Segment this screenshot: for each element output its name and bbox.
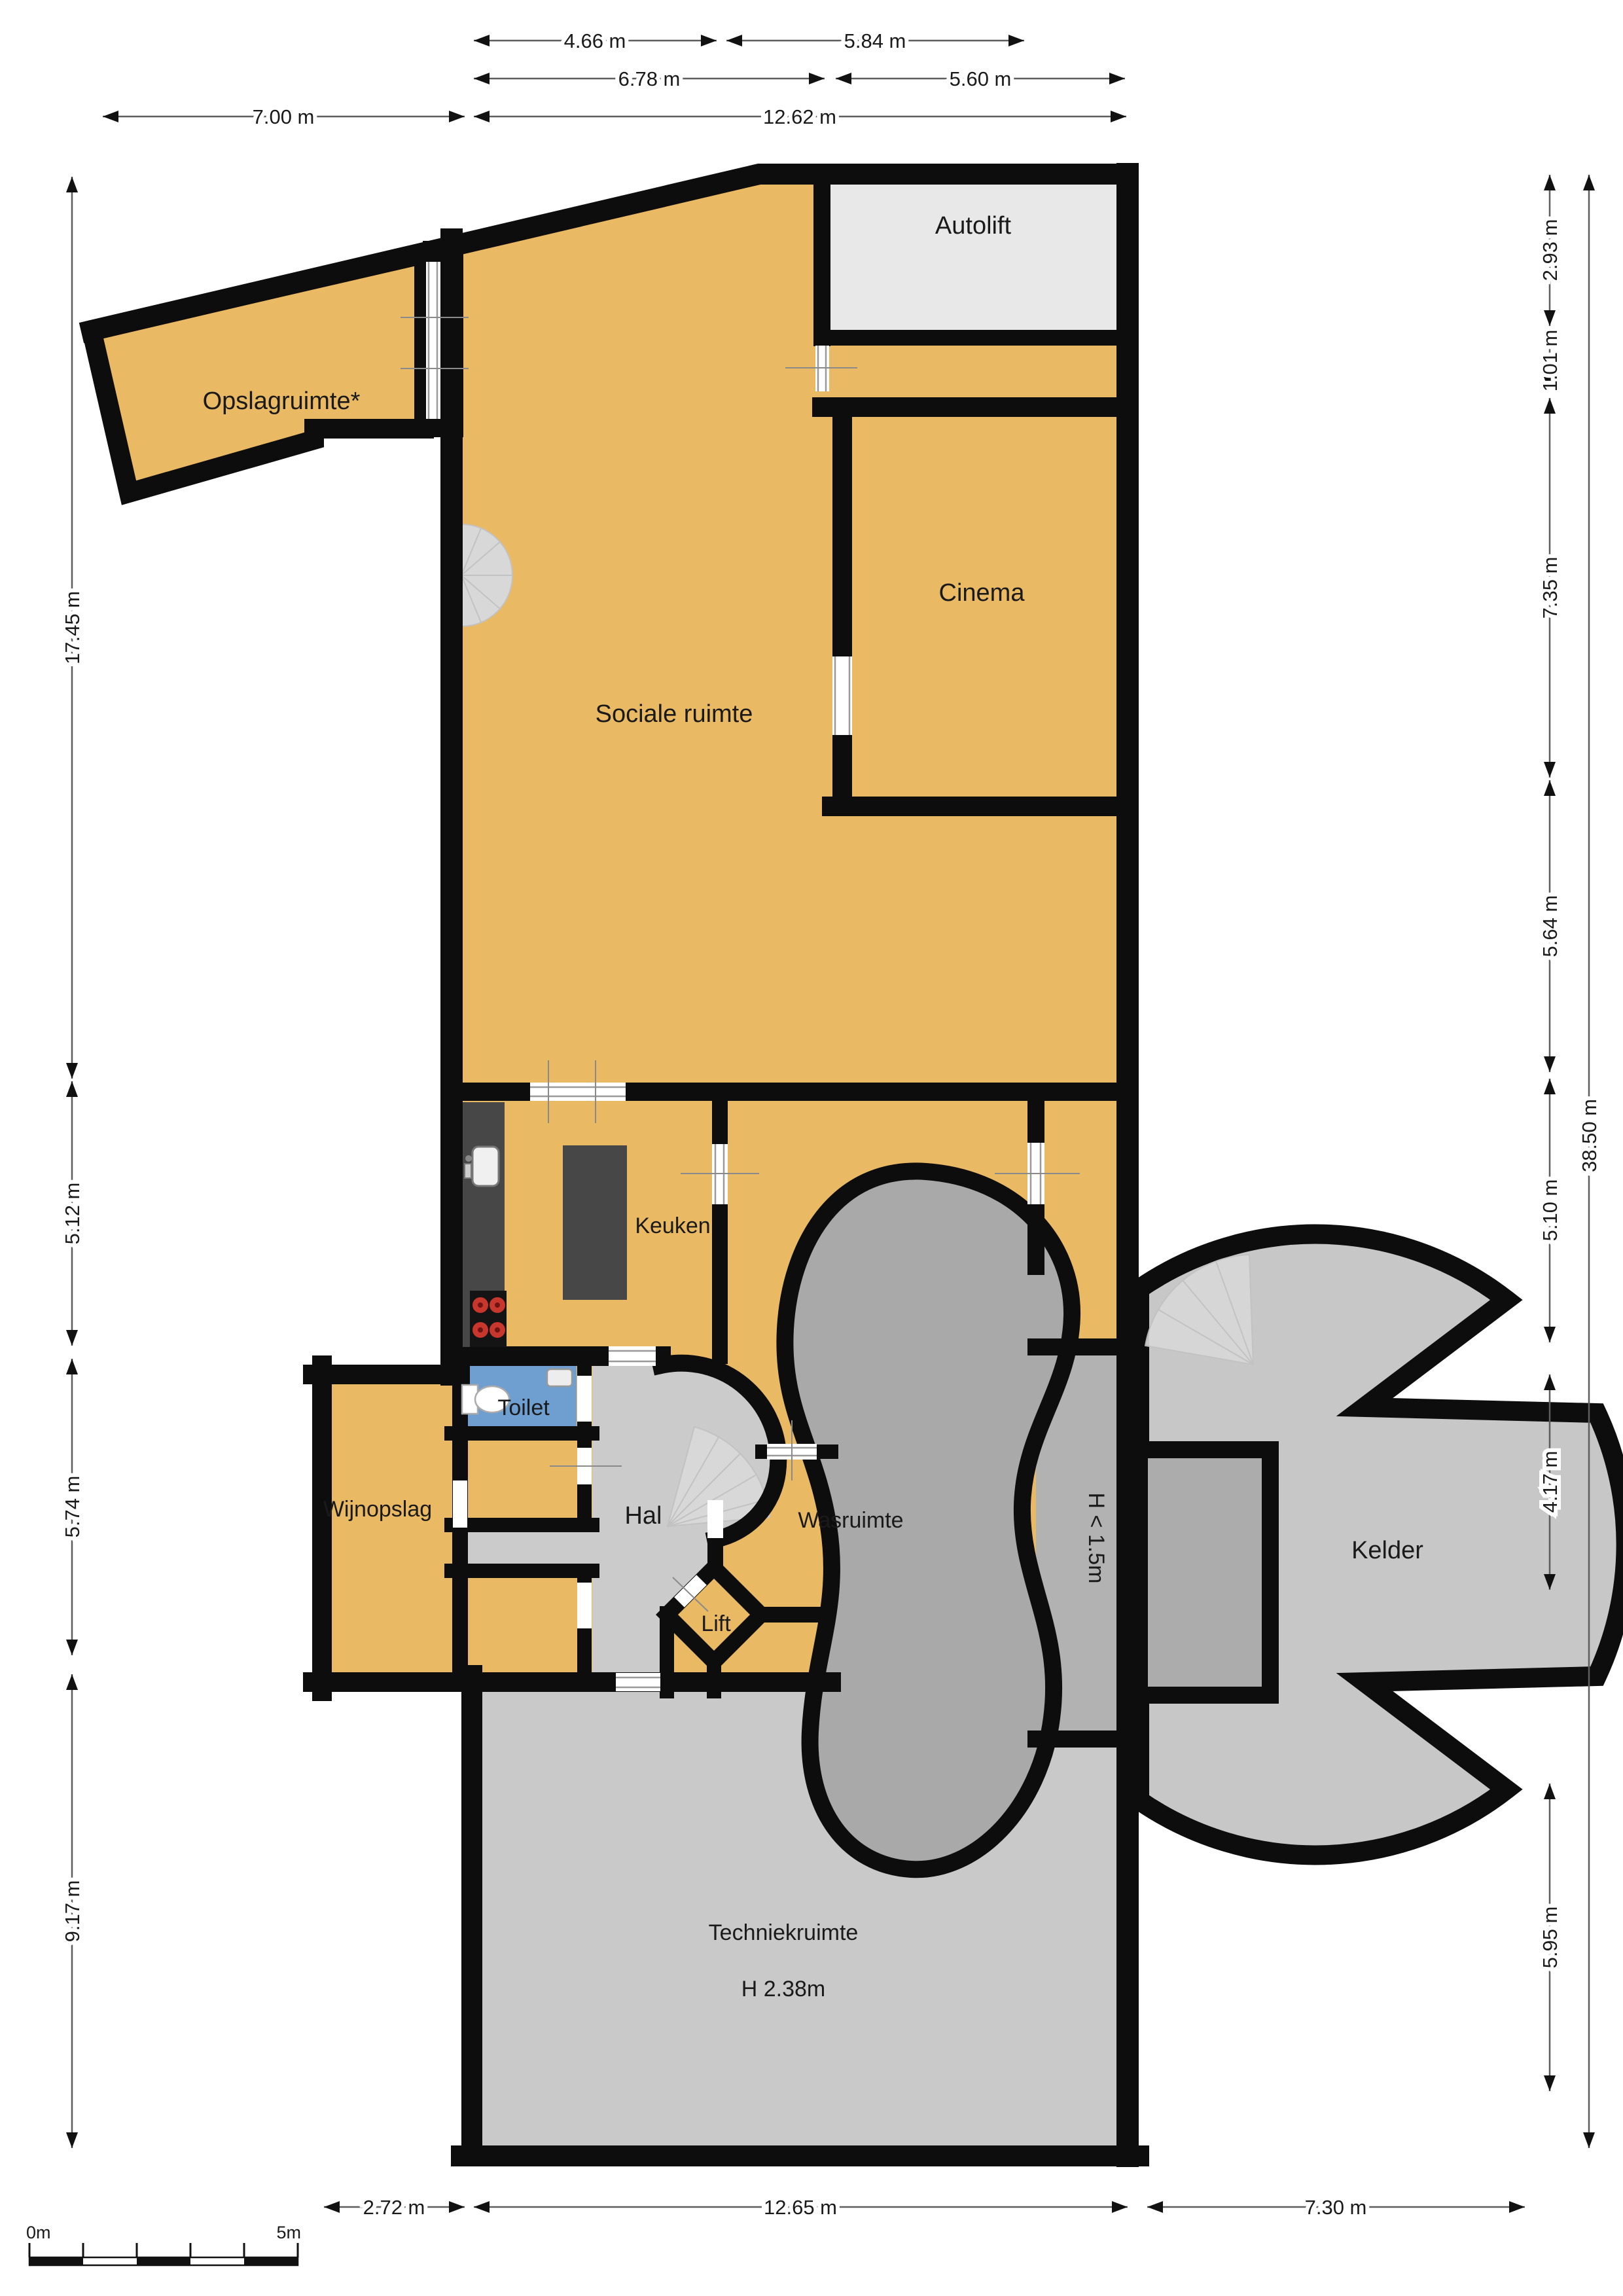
low-height-label: H < 1.5m bbox=[1084, 1493, 1109, 1584]
dim-right-5: 5.10 m bbox=[1539, 1179, 1561, 1242]
scale-start-label: 0m bbox=[26, 2223, 51, 2242]
door-keuken-hal bbox=[609, 1346, 656, 1366]
scale-seg-3 bbox=[244, 2257, 298, 2265]
scale-end-label: 5m bbox=[276, 2223, 301, 2242]
techniekruimte-height-label: H 2.38m bbox=[741, 1977, 826, 2001]
sociale-ruimte-label: Sociale ruimte bbox=[596, 700, 753, 728]
dim-right-total: 38.50 m bbox=[1578, 1099, 1601, 1172]
keuken-label: Keuken bbox=[635, 1213, 710, 1238]
opslagruimte-label: Opslagruimte* bbox=[203, 387, 361, 415]
dim-top3-b: 12.62 m bbox=[763, 105, 836, 128]
door-roomB bbox=[577, 1583, 592, 1628]
dim-top1-b: 5.84 m bbox=[844, 29, 906, 52]
cinema-label: Cinema bbox=[939, 579, 1026, 607]
wijnopslag-label: Wijnopslag bbox=[323, 1497, 432, 1522]
dim-top2-a: 6.78 m bbox=[618, 67, 681, 90]
scale-seg-2 bbox=[137, 2257, 190, 2265]
cooktop-icon bbox=[470, 1291, 507, 1347]
scale-bar: 0m 5m bbox=[26, 2223, 301, 2265]
floorplan-page: Kelder Opslagruimte* bbox=[0, 0, 1623, 2296]
scale-seg-1 bbox=[29, 2257, 83, 2265]
dims-left: 17.45 m 5.12 m 5.74 m 9.17 m bbox=[61, 177, 84, 2148]
keuken-island bbox=[563, 1145, 627, 1300]
dims-right: 2.93 m 1.01 m 7.35 m 5.64 m 5.10 m 4.17 … bbox=[1539, 175, 1601, 2148]
dim-left-3: 5.74 m bbox=[61, 1476, 84, 1538]
wasruimte-label: Wasruimte bbox=[798, 1508, 903, 1533]
door-hal-wasruimte bbox=[707, 1500, 723, 1538]
techniekruimte-label: Techniekruimte bbox=[709, 1920, 859, 1945]
lift-label: Lift bbox=[701, 1611, 731, 1636]
door-wijnopslag bbox=[453, 1480, 467, 1528]
autolift-label: Autolift bbox=[935, 212, 1012, 240]
dim-top2-b: 5.60 m bbox=[950, 67, 1012, 90]
dim-right-2: 1.01 m bbox=[1539, 330, 1561, 392]
dim-top3-a: 7.00 m bbox=[253, 105, 315, 128]
toilet-label: Toilet bbox=[497, 1395, 550, 1420]
door-toilet bbox=[577, 1376, 592, 1422]
dim-right-3: 7.35 m bbox=[1539, 557, 1561, 619]
dim-top1-a: 4.66 m bbox=[564, 29, 626, 52]
kelder-label: Kelder bbox=[1351, 1537, 1423, 1564]
dim-right-6: 4.17 m bbox=[1539, 1451, 1561, 1513]
scale-ticks bbox=[29, 2243, 298, 2257]
floorplan-basement: Kelder Opslagruimte* bbox=[0, 0, 1623, 2296]
autolift-floor bbox=[829, 185, 1117, 330]
dim-left-4: 9.17 m bbox=[61, 1880, 84, 1943]
dim-bottom-2: 12.65 m bbox=[764, 2196, 837, 2219]
dim-left-2: 5.12 m bbox=[61, 1183, 84, 1245]
dims-bottom: 2.72 m 12.65 m 7.30 m bbox=[324, 2196, 1525, 2219]
dim-right-7: 5.95 m bbox=[1539, 1907, 1561, 1969]
dim-bottom-3: 7.30 m bbox=[1305, 2196, 1367, 2219]
hal-label: Hal bbox=[624, 1502, 662, 1530]
washbasin-icon bbox=[547, 1369, 572, 1386]
dim-right-4: 5.64 m bbox=[1539, 895, 1561, 958]
dims-top: 4.66 m 5.84 m 6.78 m 5.60 m 7.00 m 12.62… bbox=[103, 29, 1126, 128]
window-keuken-top bbox=[530, 1083, 626, 1101]
door-hal-techniek bbox=[616, 1673, 660, 1691]
kelder-inner-room bbox=[1139, 1450, 1270, 1695]
dim-left-1: 17.45 m bbox=[61, 591, 84, 664]
dim-right-1: 2.93 m bbox=[1539, 219, 1561, 281]
dim-bottom-1: 2.72 m bbox=[363, 2196, 425, 2219]
